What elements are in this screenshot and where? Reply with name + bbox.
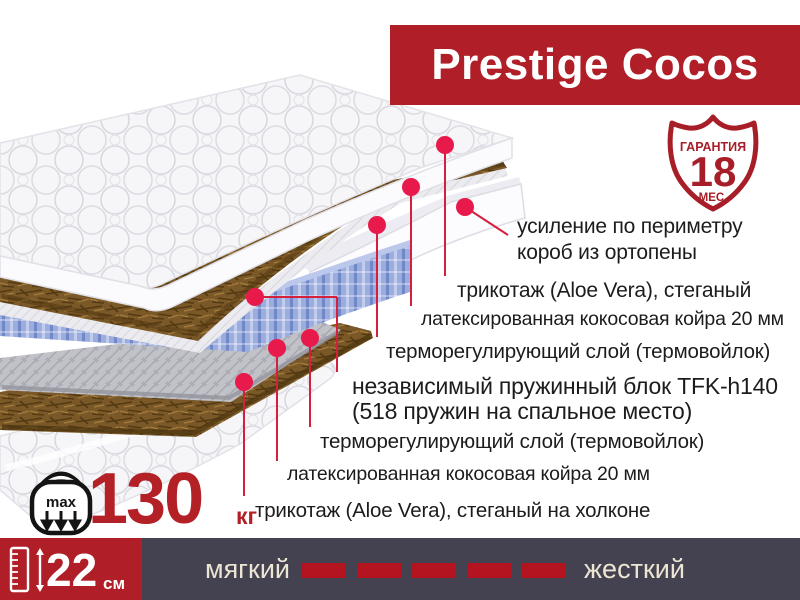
layer-dot (436, 136, 454, 154)
firmness-dash (522, 563, 566, 578)
ruler-icon (9, 546, 49, 594)
firmness-dash (357, 563, 401, 578)
max-weight-max-label: max (46, 494, 77, 511)
layer-dot (456, 198, 474, 216)
height-value: 22 (46, 543, 97, 597)
warranty-badge: ГАРАНТИЯ 18 МЕС. (661, 110, 765, 222)
firmness-dash (412, 563, 456, 578)
layer-label-springs: независимый пружинный блок TFK-h140 (518… (352, 374, 778, 425)
height-unit: см (103, 574, 125, 594)
product-title-banner: Prestige Cocos (390, 25, 800, 105)
layer-dot (402, 178, 420, 196)
layer-dot (301, 329, 319, 347)
layer-dot (268, 339, 286, 357)
firmness-soft-label: мягкий (205, 554, 290, 585)
layer-label-coir-bottom: латексированная кокосовая койра 20 мм (287, 463, 650, 487)
mattress-infographic: Prestige Cocos ГАРАНТИЯ 18 МЕС. усиление… (0, 0, 800, 600)
layer-dot (368, 216, 386, 234)
product-title: Prestige Cocos (431, 40, 758, 90)
layer-label-perimeter: усиление по периметру короб из ортопены (517, 214, 742, 265)
layer-label-coir-top: латексированная кокосовая койра 20 мм (421, 308, 784, 332)
max-weight-icon: max (26, 460, 96, 536)
layer-dot (235, 373, 253, 391)
firmness-dash (467, 563, 511, 578)
firmness-dash (302, 563, 346, 578)
layer-label-felt-bottom: терморегулирующий слой (термовойлок) (320, 429, 704, 454)
bottom-bar: 22 см мягкий жесткий (0, 538, 800, 600)
layer-label-knit-bottom: трикотаж (Aloe Vera), стеганый на холкон… (255, 498, 650, 523)
layer-label-knit-top: трикотаж (Aloe Vera), стеганый (457, 278, 751, 304)
height-block: 22 см (0, 538, 142, 600)
firmness-hard-label: жесткий (584, 554, 685, 585)
max-weight-unit: кг (236, 503, 257, 530)
badge-warranty-unit: МЕС. (699, 192, 728, 204)
max-weight-value: 130 (88, 458, 202, 540)
badge-warranty-number: 18 (690, 148, 737, 195)
layer-dot (246, 288, 264, 306)
layer-label-felt-top: терморегулирующий слой (термовойлок) (386, 339, 770, 364)
down-arrows-icon (43, 511, 80, 529)
